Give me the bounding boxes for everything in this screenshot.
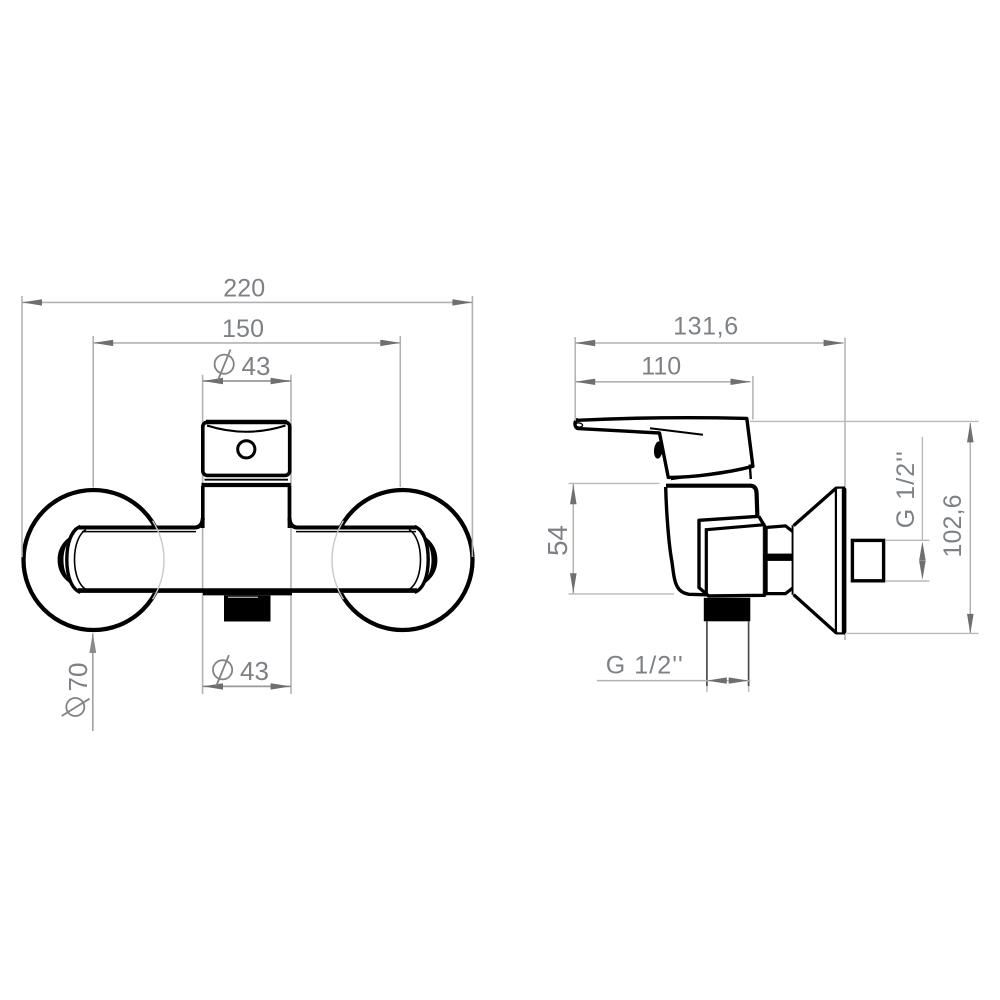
svg-text:43: 43 bbox=[240, 656, 269, 686]
svg-text:110: 110 bbox=[641, 353, 681, 381]
svg-text:G 1/2'': G 1/2'' bbox=[892, 451, 920, 528]
svg-text:G 1/2'': G 1/2'' bbox=[606, 651, 683, 679]
svg-text:70: 70 bbox=[63, 663, 93, 692]
svg-text:220: 220 bbox=[223, 274, 265, 302]
svg-text:43: 43 bbox=[242, 351, 271, 381]
svg-text:150: 150 bbox=[222, 315, 264, 343]
svg-text:102,6: 102,6 bbox=[939, 495, 967, 558]
svg-text:54: 54 bbox=[542, 525, 573, 556]
svg-text:131,6: 131,6 bbox=[673, 312, 738, 340]
